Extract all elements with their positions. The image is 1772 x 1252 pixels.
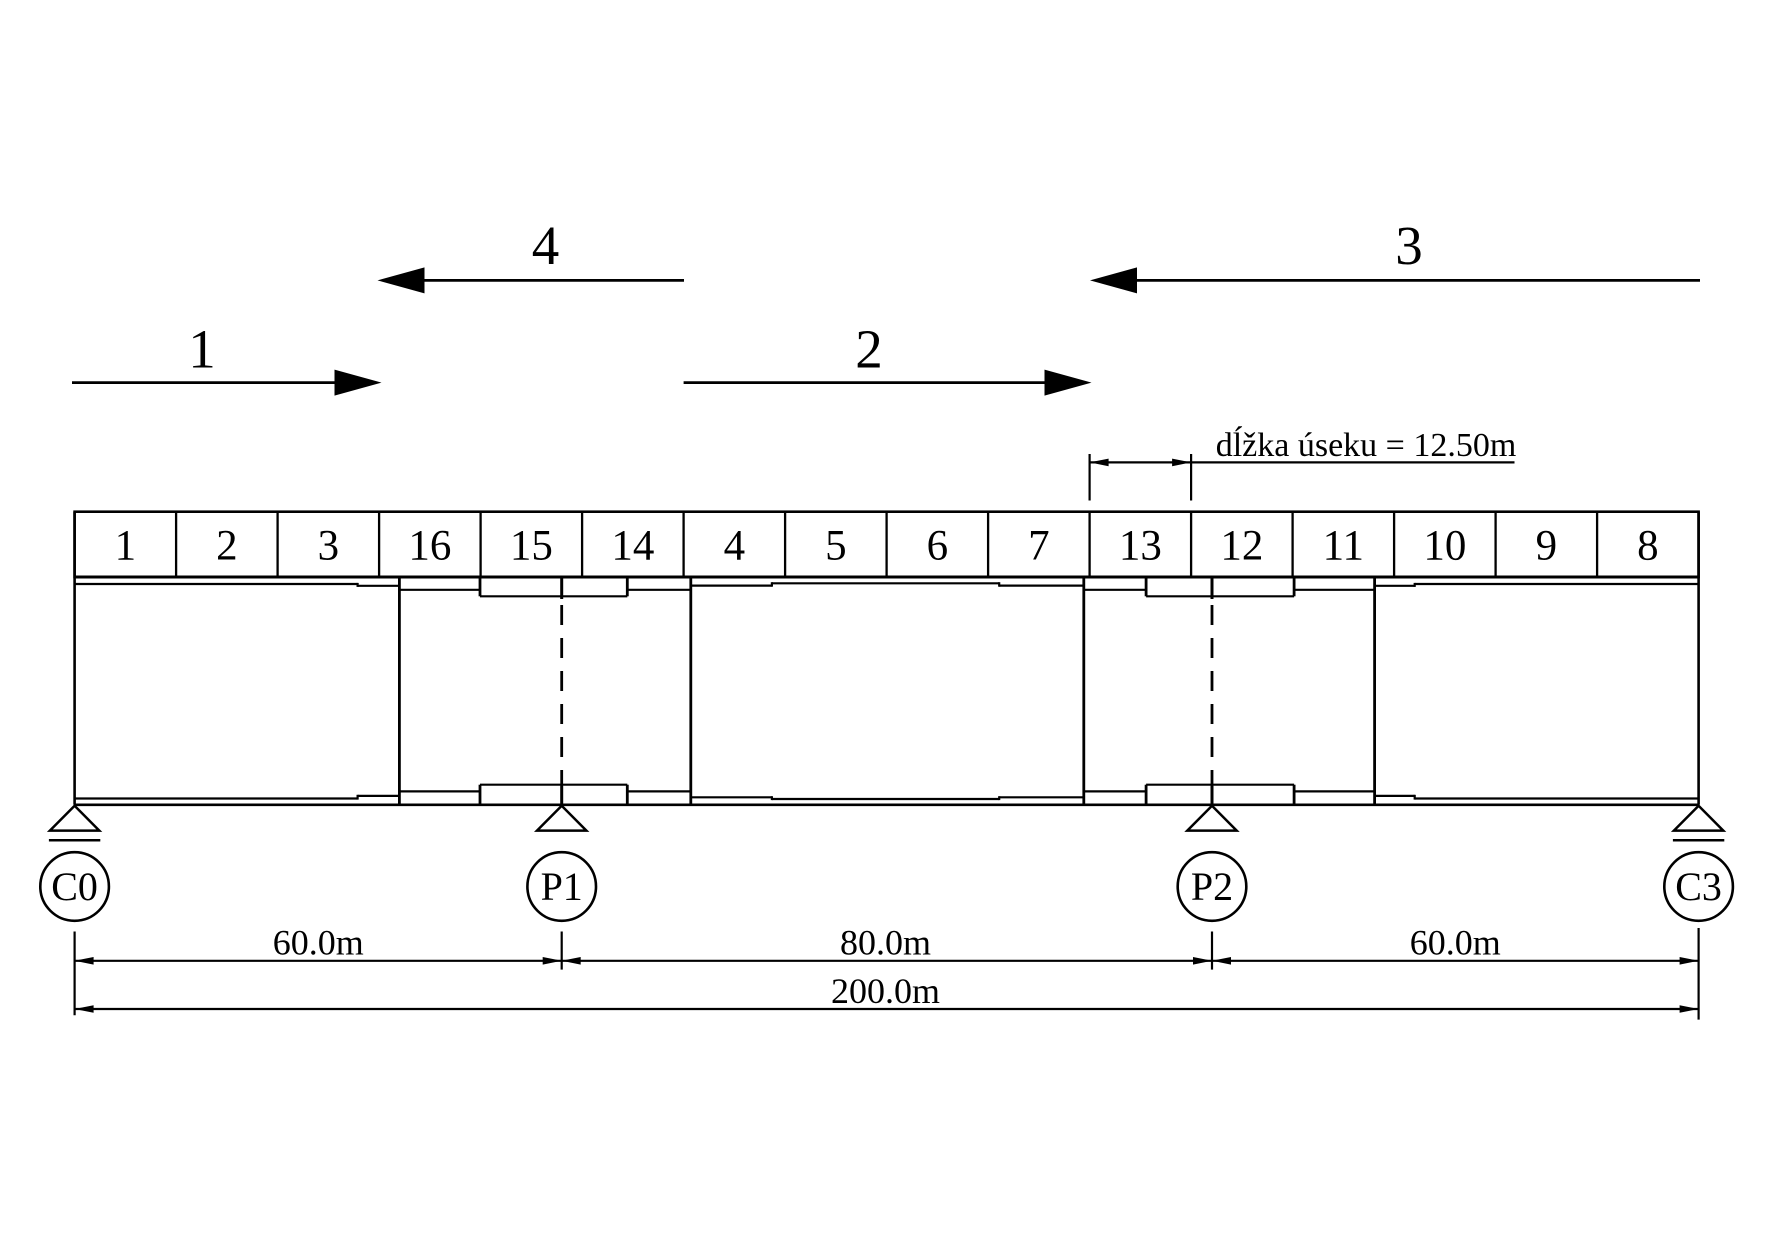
svg-text:P1: P1 — [541, 864, 583, 909]
svg-text:6: 6 — [927, 523, 949, 570]
svg-text:200.0m: 200.0m — [831, 971, 940, 1011]
svg-text:2: 2 — [855, 319, 883, 380]
svg-text:1: 1 — [188, 319, 216, 380]
svg-text:16: 16 — [408, 523, 451, 570]
svg-text:9: 9 — [1536, 523, 1558, 570]
svg-text:2: 2 — [216, 523, 238, 570]
svg-text:14: 14 — [611, 523, 654, 570]
svg-text:4: 4 — [724, 523, 746, 570]
svg-text:60.0m: 60.0m — [273, 922, 364, 962]
svg-text:C0: C0 — [51, 864, 98, 909]
svg-text:C3: C3 — [1675, 864, 1722, 909]
svg-text:80.0m: 80.0m — [840, 922, 931, 962]
svg-text:P2: P2 — [1191, 864, 1233, 909]
svg-text:1: 1 — [115, 523, 137, 570]
svg-text:7: 7 — [1028, 523, 1050, 570]
svg-text:15: 15 — [510, 523, 553, 570]
svg-text:3: 3 — [318, 523, 340, 570]
svg-text:60.0m: 60.0m — [1410, 922, 1501, 962]
svg-text:dĺžka úseku = 12.50m: dĺžka úseku = 12.50m — [1216, 426, 1517, 464]
svg-text:5: 5 — [825, 523, 847, 570]
svg-text:12: 12 — [1220, 523, 1263, 570]
svg-text:10: 10 — [1423, 523, 1466, 570]
svg-text:13: 13 — [1119, 523, 1162, 570]
svg-text:11: 11 — [1323, 523, 1364, 570]
svg-text:4: 4 — [532, 215, 560, 276]
svg-text:8: 8 — [1637, 523, 1659, 570]
svg-text:3: 3 — [1395, 215, 1423, 276]
